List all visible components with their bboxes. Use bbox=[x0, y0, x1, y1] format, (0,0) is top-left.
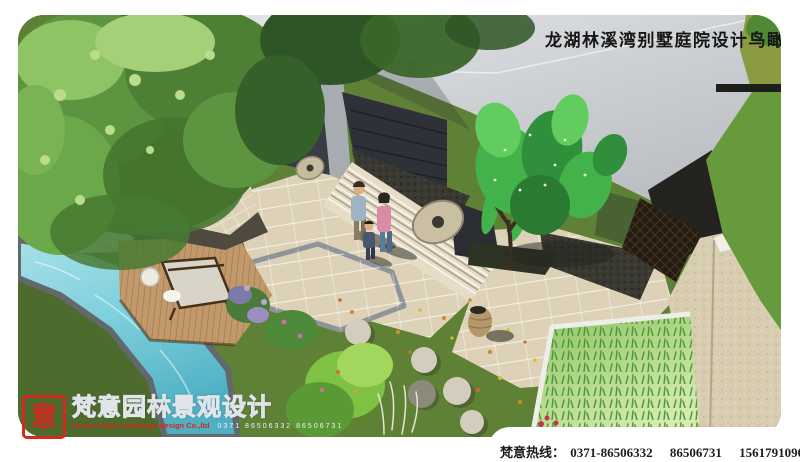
seal-character: 意 bbox=[31, 404, 58, 431]
garden-scene bbox=[18, 15, 781, 437]
planting-bed bbox=[532, 314, 700, 437]
hotline-phone-3: 15617910900（孙） bbox=[739, 445, 800, 460]
company-name-en: Henan Fanyi Landscape design Co.,ltd bbox=[72, 421, 210, 430]
hotline: 梵意热线： 0371-86506332 86506731 15617910900… bbox=[500, 442, 800, 461]
page-title: 龙湖林溪湾别墅庭院设计鸟瞰图 bbox=[545, 26, 781, 51]
rendering-viewport: 龙湖林溪湾别墅庭院设计鸟瞰图 bbox=[18, 15, 781, 437]
side-table bbox=[141, 268, 159, 286]
company-phone-digits: 0371 86506332 86506731 bbox=[218, 423, 344, 430]
seal-icon: 意 bbox=[22, 395, 66, 439]
company-logo: 意 梵意园林景观设计 Henan Fanyi Landscape design … bbox=[22, 395, 343, 439]
hotline-phone-1: 0371-86506332 bbox=[570, 445, 652, 460]
shrub-mid bbox=[266, 310, 318, 350]
brand-name-cn: 梵意园林景观设计 bbox=[72, 395, 343, 420]
page: 龙湖林溪湾别墅庭院设计鸟瞰图 梵意热线： 0371-86506332 86506… bbox=[0, 0, 800, 462]
brand-block: 梵意园林景观设计 Henan Fanyi Landscape design Co… bbox=[72, 395, 343, 430]
hotline-phone-2: 86506731 bbox=[670, 445, 722, 460]
hotline-label: 梵意热线： bbox=[500, 445, 565, 460]
